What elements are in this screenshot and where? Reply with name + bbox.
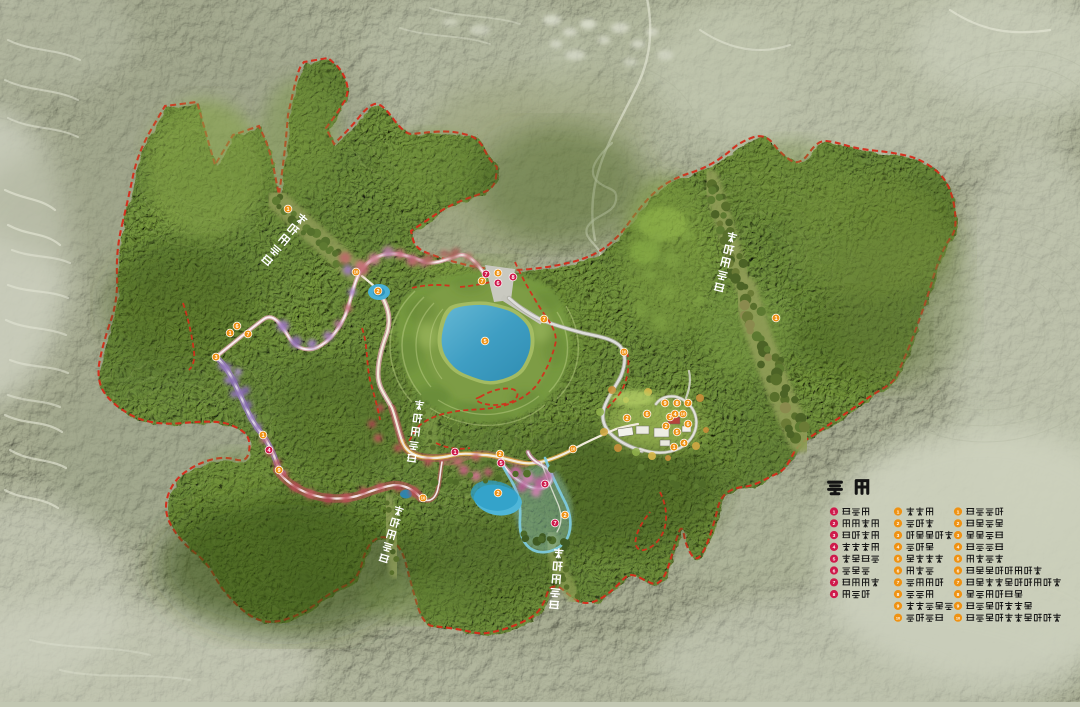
svg-text:5: 5: [483, 339, 486, 345]
svg-text:6: 6: [235, 324, 238, 330]
svg-text:7: 7: [484, 272, 487, 278]
svg-text:7: 7: [553, 521, 556, 527]
svg-text:8: 8: [833, 592, 836, 598]
svg-text:6: 6: [686, 422, 689, 428]
svg-text:1: 1: [833, 509, 836, 515]
svg-text:3: 3: [833, 533, 836, 539]
svg-text:7: 7: [833, 580, 836, 586]
svg-text:10: 10: [571, 447, 576, 452]
svg-text:4: 4: [833, 545, 836, 551]
svg-text:1: 1: [672, 445, 675, 451]
svg-text:1: 1: [774, 316, 777, 322]
svg-text:6: 6: [957, 568, 960, 574]
svg-text:6: 6: [833, 568, 836, 574]
svg-text:10: 10: [681, 412, 686, 417]
svg-text:1: 1: [957, 509, 960, 515]
svg-text:2: 2: [496, 491, 499, 497]
svg-text:3: 3: [897, 533, 900, 539]
svg-text:5: 5: [499, 461, 502, 467]
svg-text:8: 8: [496, 271, 499, 277]
svg-text:2: 2: [563, 513, 566, 519]
svg-text:2: 2: [833, 521, 836, 527]
svg-text:5: 5: [957, 557, 960, 563]
svg-text:7: 7: [480, 279, 483, 285]
svg-text:9: 9: [957, 604, 960, 610]
svg-text:1: 1: [228, 331, 231, 337]
svg-text:6: 6: [645, 412, 648, 418]
svg-text:8: 8: [511, 275, 514, 281]
svg-text:7: 7: [957, 580, 960, 586]
svg-text:2: 2: [664, 424, 667, 430]
svg-text:10: 10: [896, 616, 900, 621]
svg-text:2: 2: [625, 416, 628, 422]
svg-text:8: 8: [957, 592, 960, 598]
svg-text:9: 9: [897, 604, 900, 610]
svg-text:9: 9: [277, 468, 280, 474]
svg-text:4: 4: [897, 545, 900, 551]
svg-text:6: 6: [496, 281, 499, 287]
svg-text:3: 3: [543, 482, 546, 488]
svg-text:7: 7: [897, 580, 900, 586]
svg-text:10: 10: [421, 496, 426, 501]
svg-text:7: 7: [542, 317, 545, 323]
svg-text:1: 1: [286, 207, 289, 213]
svg-text:1: 1: [453, 450, 456, 456]
svg-text:2: 2: [957, 521, 960, 527]
svg-text:5: 5: [897, 557, 900, 563]
svg-text:3: 3: [957, 533, 960, 539]
svg-text:7: 7: [246, 332, 249, 338]
svg-text:1: 1: [897, 509, 900, 515]
svg-text:3: 3: [214, 355, 217, 361]
svg-text:8: 8: [897, 592, 900, 598]
svg-text:10: 10: [354, 270, 359, 275]
svg-text:8: 8: [675, 401, 678, 407]
svg-text:5: 5: [833, 557, 836, 563]
svg-text:9: 9: [663, 401, 666, 407]
svg-text:10: 10: [956, 616, 960, 621]
svg-text:2: 2: [376, 289, 379, 295]
svg-text:3: 3: [668, 415, 671, 421]
svg-text:10: 10: [622, 350, 627, 355]
svg-text:7: 7: [686, 401, 689, 407]
svg-text:1: 1: [261, 433, 264, 439]
svg-text:2: 2: [498, 452, 501, 458]
svg-text:2: 2: [897, 521, 900, 527]
svg-text:4: 4: [957, 545, 960, 551]
svg-text:6: 6: [897, 568, 900, 574]
svg-text:5: 5: [675, 430, 678, 436]
